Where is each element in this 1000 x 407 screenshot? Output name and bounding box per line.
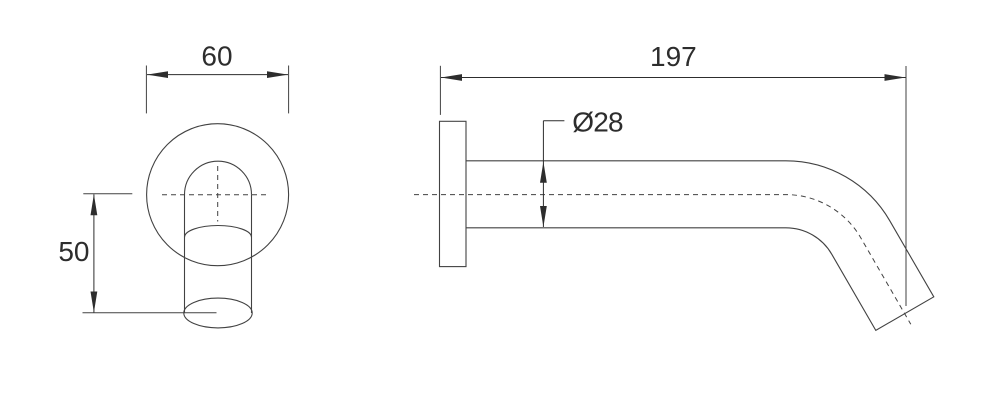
svg-text:60: 60 xyxy=(201,41,232,72)
svg-text:50: 50 xyxy=(58,236,89,267)
svg-text:Ø28: Ø28 xyxy=(572,106,623,137)
svg-text:197: 197 xyxy=(650,41,697,72)
